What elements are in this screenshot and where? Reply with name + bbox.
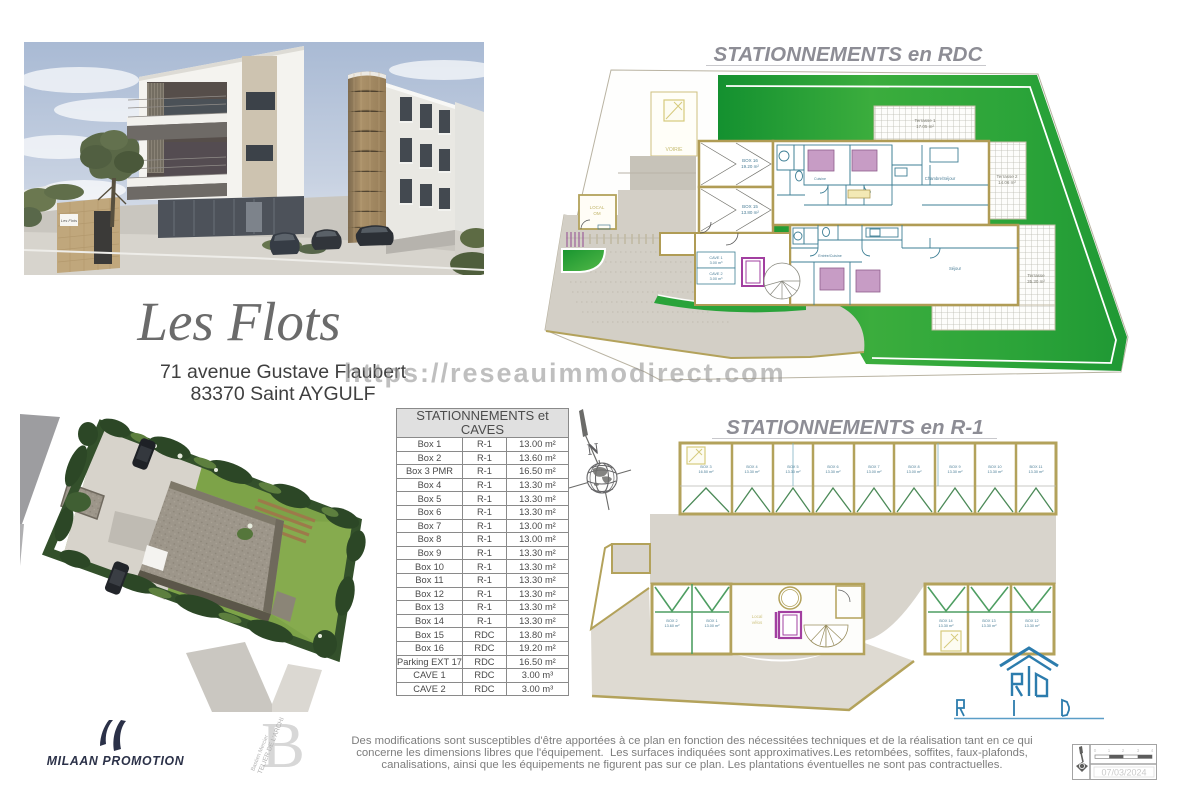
svg-text:BOX 7: BOX 7 xyxy=(868,465,879,469)
svg-text:BOX 11: BOX 11 xyxy=(1029,465,1042,469)
svg-text:13.60 m²: 13.60 m² xyxy=(665,624,681,628)
svg-text:14.06 m²: 14.06 m² xyxy=(998,180,1016,185)
svg-text:Local: Local xyxy=(752,614,763,619)
svg-text:STATIONNEMENTS en R-1: STATIONNEMENTS en R-1 xyxy=(726,416,984,439)
svg-text:VOIRIE: VOIRIE xyxy=(666,147,684,153)
svg-text:Terrasse 2: Terrasse 2 xyxy=(996,174,1018,179)
svg-text:Terrasse 1: Terrasse 1 xyxy=(914,118,936,123)
svg-text:13.00 m²: 13.00 m² xyxy=(867,470,883,474)
svg-text:BOX 12: BOX 12 xyxy=(1025,619,1038,623)
svg-text:CAVE 2: CAVE 2 xyxy=(709,272,722,276)
svg-text:BOX 13: BOX 13 xyxy=(982,619,995,623)
svg-text:BOX 15: BOX 15 xyxy=(742,204,758,209)
svg-text:13.30 m²: 13.30 m² xyxy=(1029,470,1045,474)
svg-text:BOX 8: BOX 8 xyxy=(908,465,919,469)
svg-text:13.30 m²: 13.30 m² xyxy=(1025,624,1041,628)
svg-text:13.30 m²: 13.30 m² xyxy=(826,470,842,474)
svg-text:13.30 m²: 13.30 m² xyxy=(745,470,761,474)
svg-text:13.30 m²: 13.30 m² xyxy=(988,470,1004,474)
svg-text:BOX 2: BOX 2 xyxy=(666,619,677,623)
svg-text:BOX 9: BOX 9 xyxy=(949,465,960,469)
svg-text:13.00 m²: 13.00 m² xyxy=(907,470,923,474)
svg-text:BOX 16: BOX 16 xyxy=(742,158,758,163)
svg-text:BOX 1: BOX 1 xyxy=(706,619,717,623)
svg-text:OM: OM xyxy=(593,211,601,216)
svg-text:13.30 m²: 13.30 m² xyxy=(786,470,802,474)
svg-text:BOX 3: BOX 3 xyxy=(700,465,711,469)
svg-text:3.00 m³: 3.00 m³ xyxy=(710,277,724,281)
svg-text:13.00 m²: 13.00 m² xyxy=(705,624,721,628)
svg-text:17.05 m²: 17.05 m² xyxy=(916,124,934,129)
svg-text:Terrasse: Terrasse xyxy=(1027,273,1045,278)
svg-text:13.30 m²: 13.30 m² xyxy=(939,624,955,628)
svg-text:vélos: vélos xyxy=(752,620,763,625)
svg-text:BOX 5: BOX 5 xyxy=(787,465,798,469)
svg-text:CAVE 1: CAVE 1 xyxy=(709,256,722,260)
svg-text:Les Flots: Les Flots xyxy=(61,218,77,223)
svg-text:STATIONNEMENTS en RDC: STATIONNEMENTS en RDC xyxy=(714,43,984,66)
svg-text:13.80 m²: 13.80 m² xyxy=(741,210,759,215)
svg-text:LOCAL: LOCAL xyxy=(590,205,605,210)
svg-text:19.20 m²: 19.20 m² xyxy=(741,164,759,169)
svg-text:BOX 14: BOX 14 xyxy=(939,619,952,623)
svg-text:BOX 10: BOX 10 xyxy=(988,465,1001,469)
svg-text:Entrée/Cuisine: Entrée/Cuisine xyxy=(818,254,842,258)
svg-text:BOX 4: BOX 4 xyxy=(746,465,757,469)
svg-text:BOX 6: BOX 6 xyxy=(827,465,838,469)
svg-text:13.30 m²: 13.30 m² xyxy=(982,624,998,628)
svg-text:Cuisine: Cuisine xyxy=(814,177,826,181)
svg-text:35.30 m²: 35.30 m² xyxy=(1027,279,1045,284)
svg-text:07/03/2024: 07/03/2024 xyxy=(1101,768,1146,778)
svg-text:3.00 m³: 3.00 m³ xyxy=(710,261,724,265)
svg-text:MILAAN PROMOTION: MILAAN PROMOTION xyxy=(47,754,185,768)
svg-text:13.30 m²: 13.30 m² xyxy=(948,470,964,474)
svg-text:Chambre/Séjour: Chambre/Séjour xyxy=(925,176,956,181)
svg-text:16.50 m²: 16.50 m² xyxy=(699,470,715,474)
svg-text:Séjour: Séjour xyxy=(949,266,962,271)
